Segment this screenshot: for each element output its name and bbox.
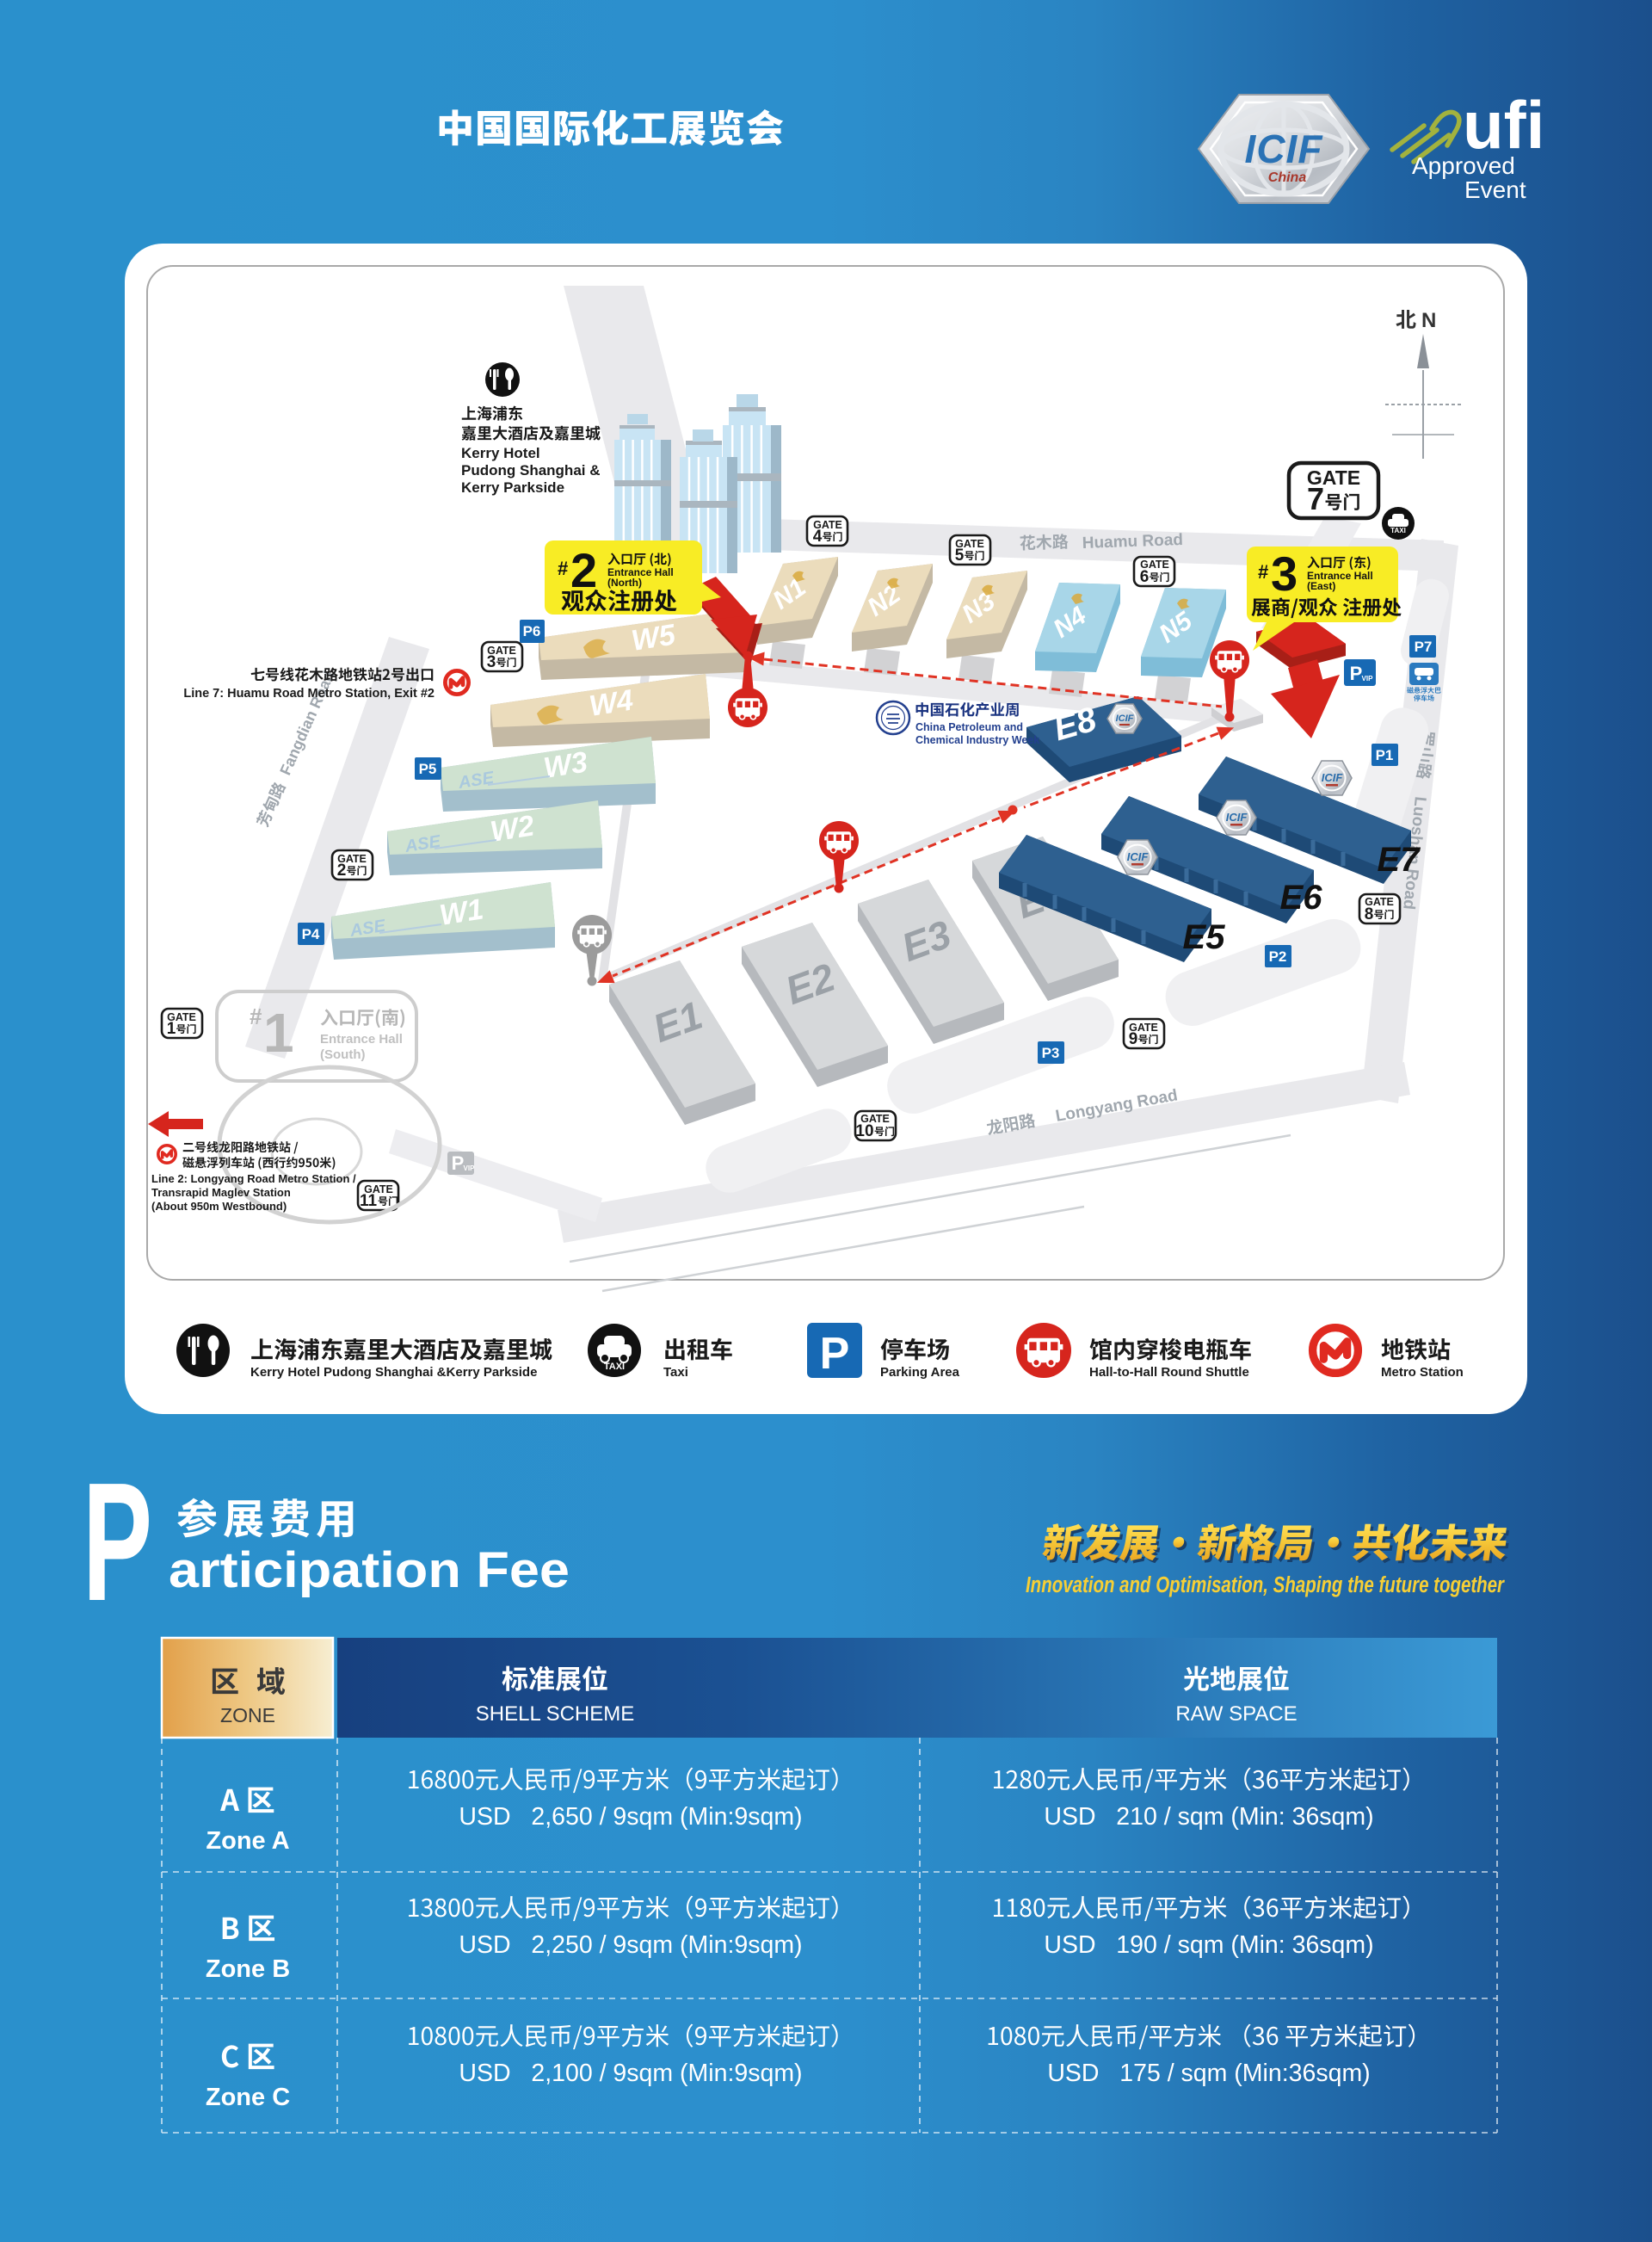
svg-text:E5: E5	[1183, 918, 1226, 956]
svg-text:ICIF: ICIF	[1322, 771, 1344, 784]
svg-text:P6: P6	[523, 623, 541, 639]
svg-text:Event: Event	[1464, 176, 1526, 203]
svg-text:P1: P1	[1376, 747, 1394, 763]
svg-text:P7: P7	[1415, 639, 1433, 655]
svg-text:USD 2,100 / 9sqm (Min:9sqm): USD 2,100 / 9sqm (Min:9sqm)	[459, 2060, 802, 2087]
svg-text:ICIF: ICIF	[1226, 811, 1248, 824]
svg-text:(North): (North)	[607, 577, 642, 589]
svg-text:articipation Fee: articipation Fee	[169, 1542, 570, 1598]
svg-text:Metro Station: Metro Station	[1381, 1365, 1464, 1380]
svg-text:W5: W5	[629, 618, 678, 658]
svg-text:W4: W4	[587, 683, 635, 723]
svg-text:P3: P3	[1042, 1045, 1060, 1061]
svg-text:W3: W3	[541, 745, 589, 785]
svg-text:1: 1	[167, 1020, 176, 1038]
svg-text:Pudong Shanghai &: Pudong Shanghai &	[461, 462, 601, 479]
svg-text:11: 11	[360, 1192, 378, 1210]
svg-text:Kerry Parkside: Kerry Parkside	[461, 479, 564, 496]
svg-text:Approved: Approved	[1412, 152, 1515, 179]
svg-text:Zone A: Zone A	[206, 1827, 289, 1855]
svg-text:USD 175 / sqm (Min:36sqm): USD 175 / sqm (Min:36sqm)	[1047, 2060, 1370, 2087]
svg-text:4: 4	[813, 528, 823, 546]
svg-text:#: #	[1258, 561, 1268, 583]
svg-text:2: 2	[337, 862, 347, 880]
svg-text:P2: P2	[1269, 948, 1287, 965]
svg-text:Line 7: Huamu Road Metro Stati: Line 7: Huamu Road Metro Station, Exit #…	[183, 687, 435, 701]
svg-text:1: 1	[263, 1002, 294, 1064]
svg-text:P: P	[820, 1329, 850, 1379]
svg-text:China Petroleum and: China Petroleum and	[915, 721, 1023, 733]
svg-text:USD 2,650 / 9sqm (Min:9sqm): USD 2,650 / 9sqm (Min:9sqm)	[459, 1803, 802, 1831]
svg-text:Kerry Hotel Pudong Shanghai &K: Kerry Hotel Pudong Shanghai &Kerry Parks…	[250, 1365, 537, 1380]
svg-text:VIP: VIP	[464, 1164, 476, 1172]
svg-text:ICIF: ICIF	[1245, 127, 1324, 171]
svg-text:China: China	[1268, 170, 1307, 185]
svg-text:7: 7	[1307, 481, 1324, 516]
svg-text:W2: W2	[488, 809, 536, 849]
svg-text:Taxi: Taxi	[663, 1365, 688, 1380]
svg-text:W1: W1	[437, 892, 485, 932]
svg-text:Line 2: Longyang Road Metro St: Line 2: Longyang Road Metro Station /	[151, 1172, 356, 1185]
svg-text:10: 10	[855, 1122, 873, 1140]
svg-text:6: 6	[1140, 568, 1150, 586]
svg-text:Transrapid Maglev Station: Transrapid Maglev Station	[151, 1186, 291, 1199]
svg-text:P5: P5	[419, 761, 437, 777]
svg-text:N: N	[1421, 309, 1436, 332]
svg-text:P: P	[452, 1152, 465, 1174]
svg-text:RAW SPACE: RAW SPACE	[1175, 1702, 1297, 1726]
svg-text:Zone B: Zone B	[206, 1955, 290, 1983]
svg-text:ZONE: ZONE	[220, 1704, 275, 1726]
svg-text:VIP: VIP	[1362, 675, 1374, 682]
svg-text:3: 3	[1271, 547, 1298, 601]
svg-text:9: 9	[1129, 1030, 1138, 1048]
svg-text:ICIF: ICIF	[1116, 713, 1134, 724]
svg-text:Entrance Hall: Entrance Hall	[320, 1032, 403, 1047]
svg-text:Chemical Industry Week: Chemical Industry Week	[915, 734, 1039, 746]
svg-text:P4: P4	[302, 926, 320, 942]
svg-text:Innovation and Optimisation, S: Innovation and Optimisation, Shaping the…	[1026, 1573, 1506, 1597]
svg-text:SHELL SCHEME: SHELL SCHEME	[476, 1702, 635, 1726]
svg-text:Zone C: Zone C	[206, 2084, 290, 2111]
svg-text:5: 5	[955, 547, 965, 565]
svg-text:(South): (South)	[320, 1047, 365, 1062]
svg-text:E7: E7	[1378, 841, 1421, 879]
svg-text:#: #	[558, 558, 568, 579]
svg-text:8: 8	[1365, 905, 1374, 923]
svg-text:Parking Area: Parking Area	[880, 1365, 960, 1380]
svg-text:(East): (East)	[1307, 580, 1335, 592]
svg-text:#: #	[250, 1004, 262, 1029]
svg-text:E6: E6	[1280, 879, 1323, 917]
svg-text:USD 190 / sqm (Min: 36sqm): USD 190 / sqm (Min: 36sqm)	[1044, 1931, 1373, 1959]
svg-text:USD 210 / sqm (Min: 36sqm): USD 210 / sqm (Min: 36sqm)	[1044, 1803, 1373, 1831]
svg-text:2: 2	[570, 543, 597, 597]
svg-text:Hall-to-Hall Round Shuttle: Hall-to-Hall Round Shuttle	[1089, 1365, 1249, 1380]
svg-text:TAXI: TAXI	[604, 1362, 625, 1372]
svg-text:P: P	[83, 1447, 152, 1636]
svg-text:ICIF: ICIF	[1127, 850, 1150, 863]
svg-text:USD 2,250 / 9sqm (Min:9sqm): USD 2,250 / 9sqm (Min:9sqm)	[459, 1931, 802, 1959]
svg-text:(About 950m Westbound): (About 950m Westbound)	[151, 1200, 287, 1213]
svg-text:P: P	[1350, 663, 1363, 684]
svg-text:TAXI: TAXI	[1390, 527, 1406, 534]
svg-text:3: 3	[487, 653, 496, 671]
svg-text:Huamu Road: Huamu Road	[1082, 531, 1183, 553]
svg-text:Kerry Hotel: Kerry Hotel	[461, 445, 540, 461]
svg-text:ufi: ufi	[1463, 87, 1544, 163]
